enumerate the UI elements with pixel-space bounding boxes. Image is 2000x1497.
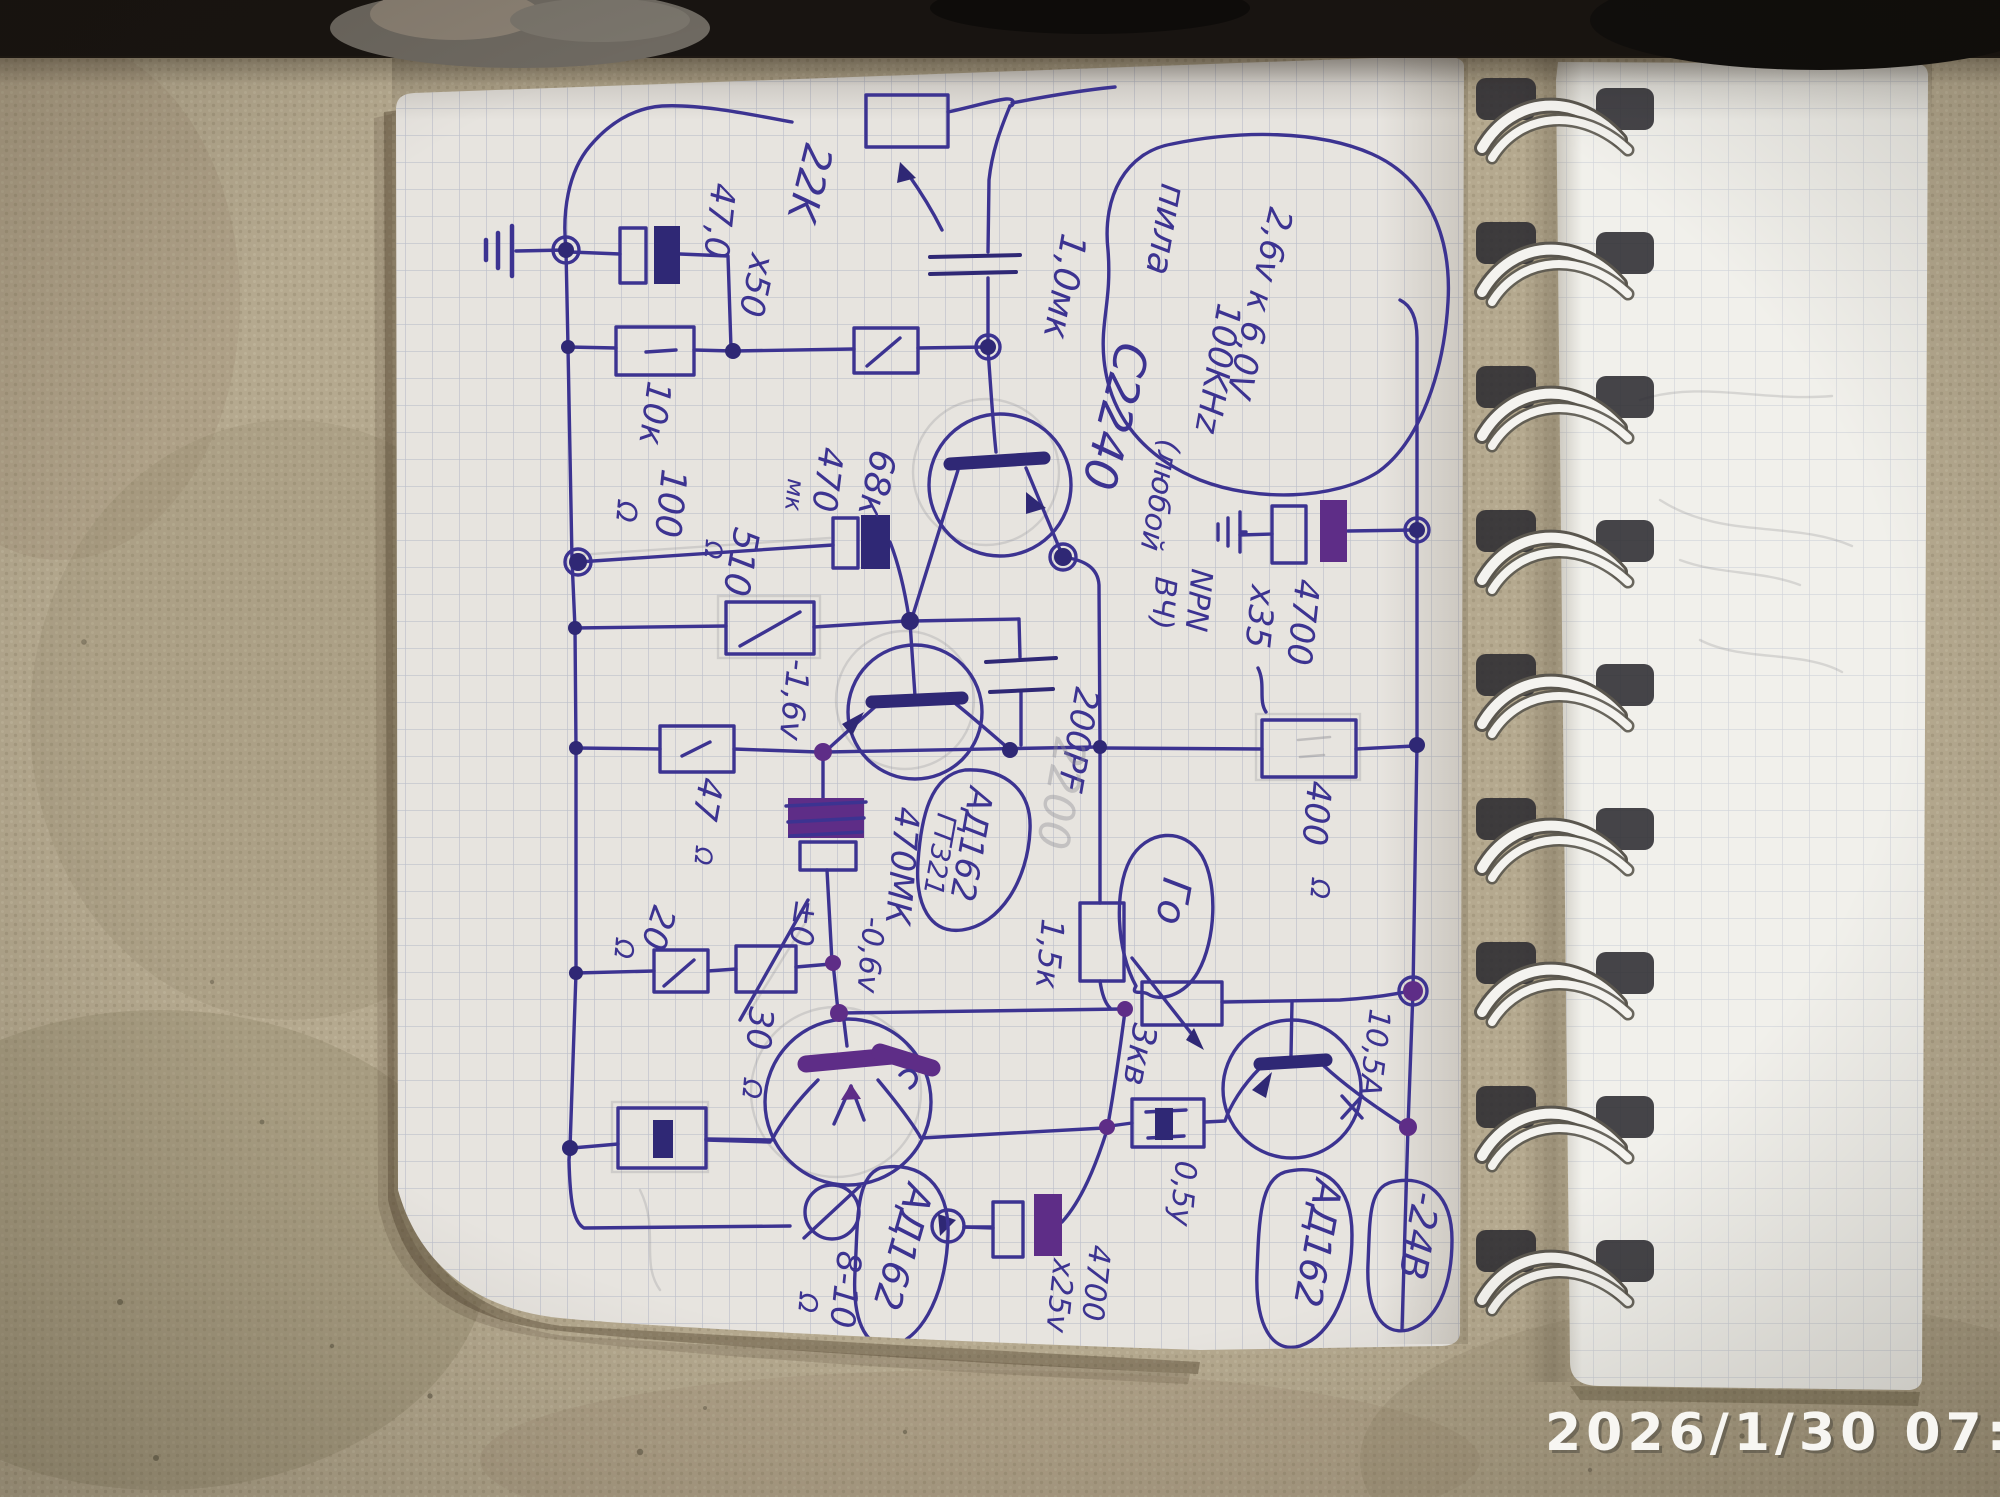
photo-canvas: 22K 47,0 х50 10к 100 Ω 68к 470 мк 510 Ω …: [0, 0, 2000, 1497]
photo-vignette: [0, 0, 2000, 1497]
timestamp-overlay: 2026/1/30 07:47: [1545, 1403, 2000, 1463]
photo-of-notebook: 22K 47,0 х50 10к 100 Ω 68к 470 мк 510 Ω …: [0, 0, 2000, 1497]
